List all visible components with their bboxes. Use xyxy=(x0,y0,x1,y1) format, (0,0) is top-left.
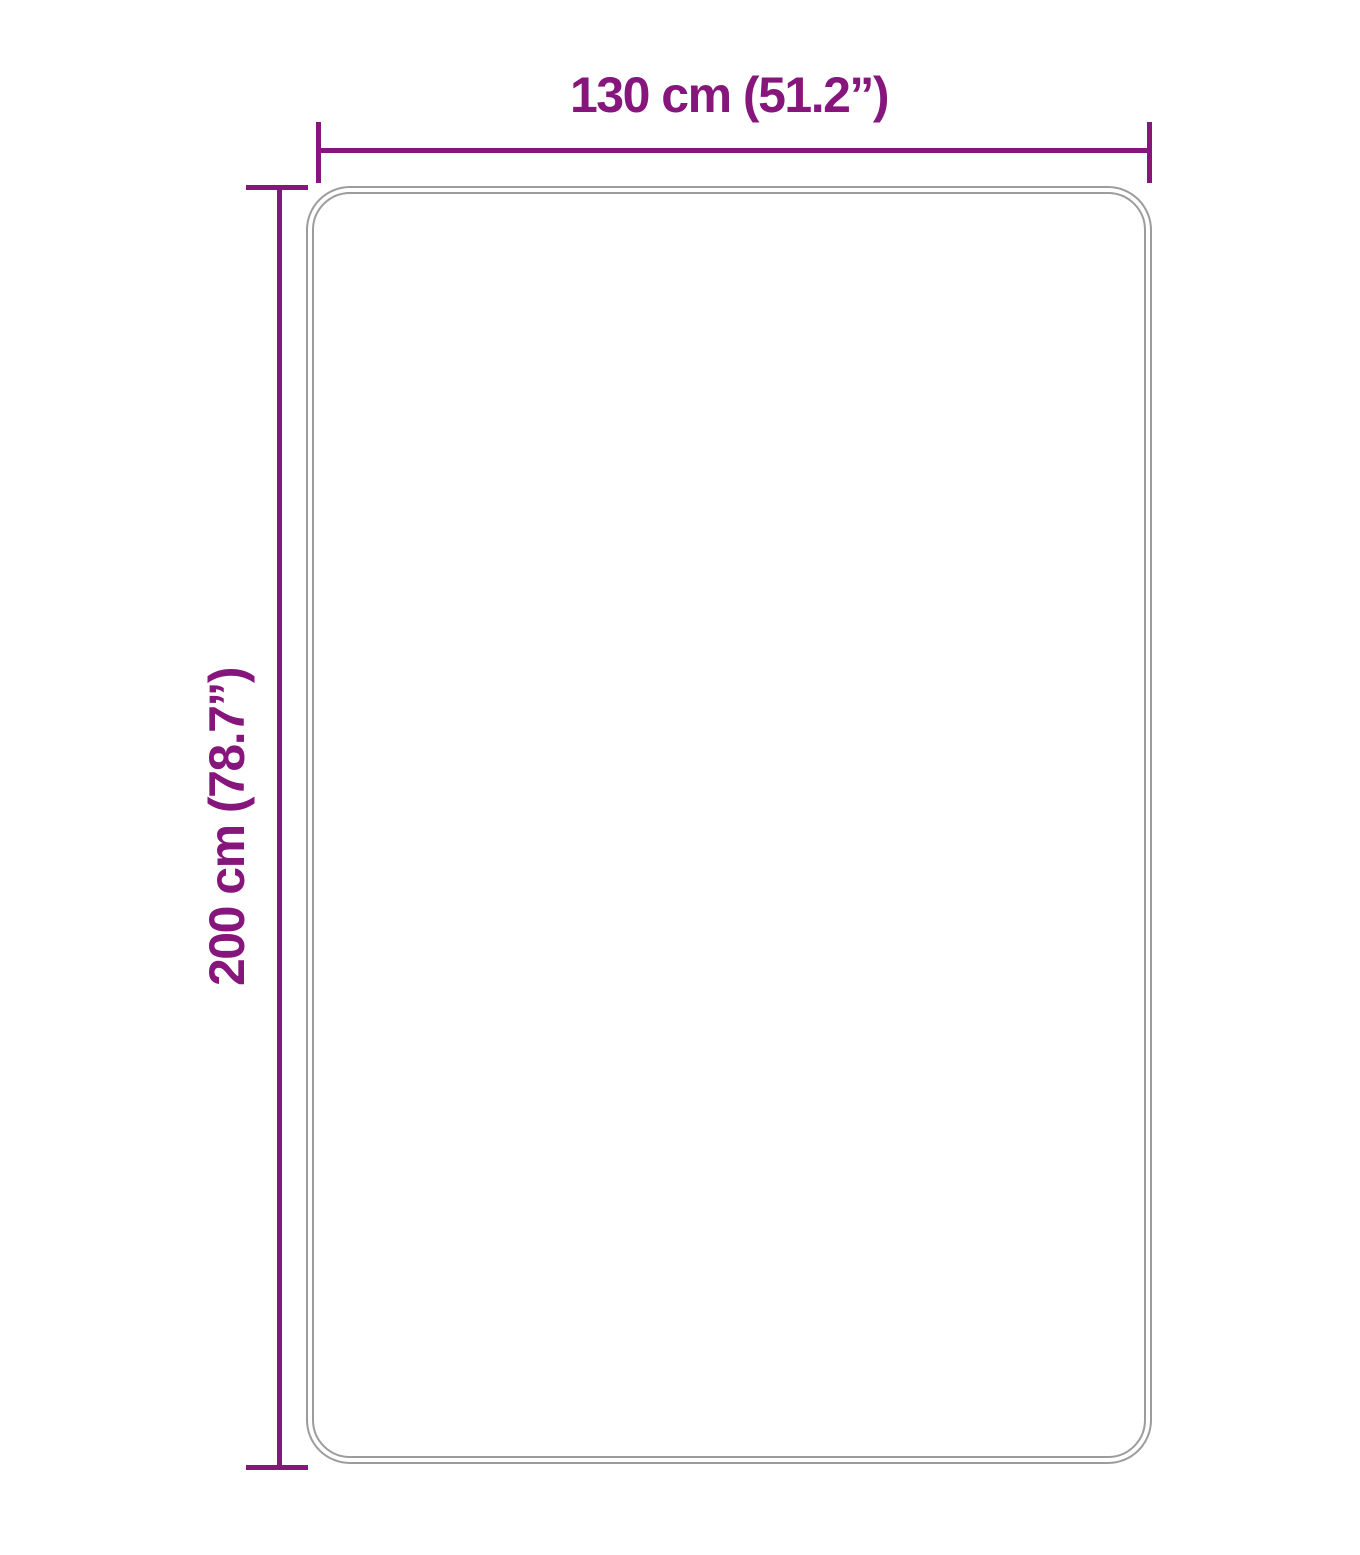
width-dimension-label: 130 cm (51.2”) xyxy=(306,64,1152,126)
width-dimension-tick-left xyxy=(316,122,321,183)
width-dimension-tick-right xyxy=(1147,122,1152,183)
rug-outline xyxy=(306,186,1152,1464)
dimension-diagram: 130 cm (51.2”) 200 cm (78.7”) xyxy=(0,0,1360,1555)
height-dimension-line xyxy=(277,187,282,1470)
height-dimension-tick-bottom xyxy=(246,1465,308,1470)
width-dimension-line xyxy=(316,148,1152,153)
rug-outline-inner xyxy=(312,192,1146,1458)
height-dimension-tick-top xyxy=(246,185,308,190)
height-dimension-label: 200 cm (78.7”) xyxy=(196,527,258,1127)
